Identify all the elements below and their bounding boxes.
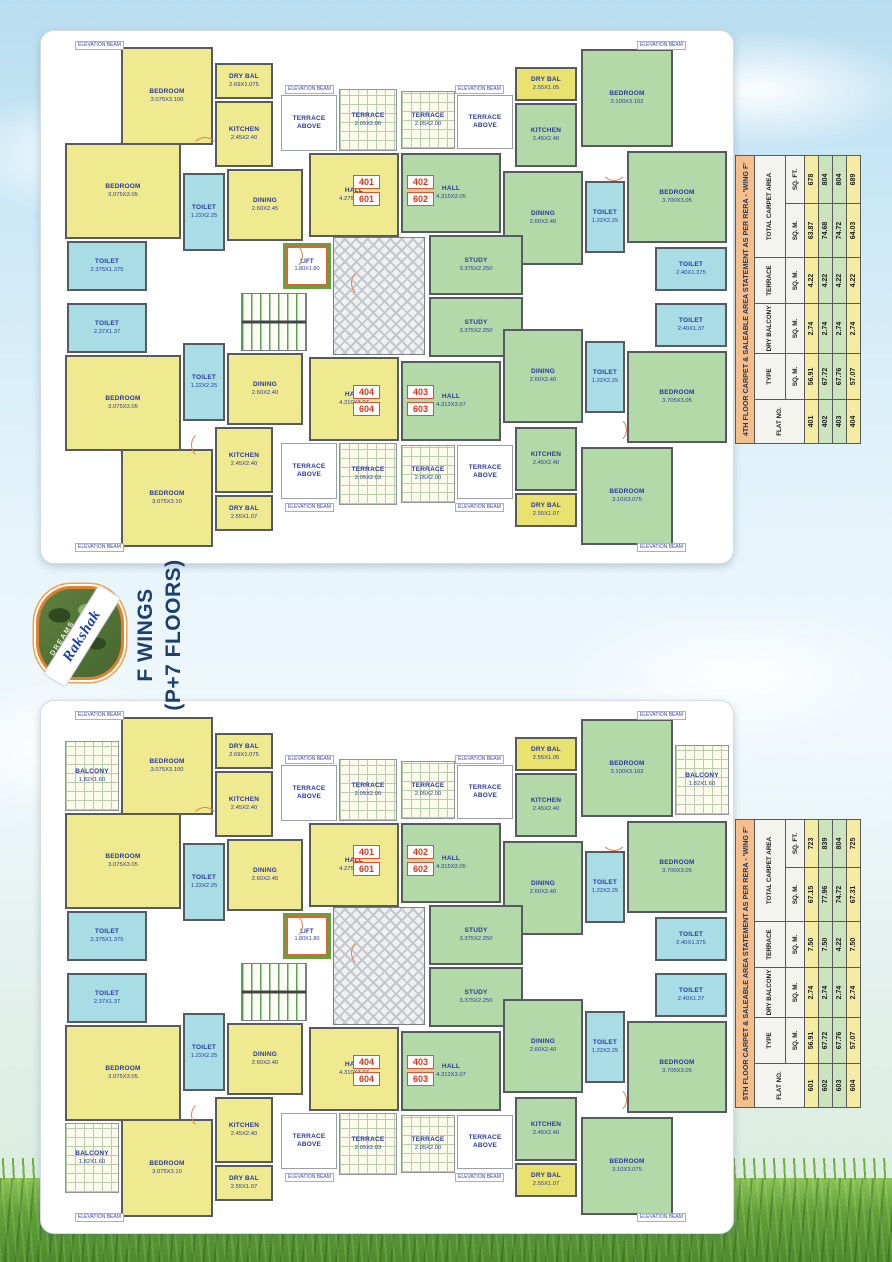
room-dimension-label: 2.55X1.07 — [231, 1184, 257, 1191]
table-cell: 56.91 — [805, 354, 819, 400]
room-toilet: TOILET1.22X2.25 — [585, 181, 625, 253]
room-dimension-label: 3.375X2.250 — [460, 266, 493, 273]
room-study: STUDY3.375X2.250 — [429, 905, 523, 965]
room-dining: DINING2.60X2.40 — [227, 1023, 303, 1095]
table-cell: 723 — [805, 820, 819, 868]
area-table-4th-floor: 4TH FLOOR CARPET & SALEABLE AREA STATEME… — [735, 156, 853, 444]
room-name-label: TOILET — [192, 204, 216, 212]
room-name-label: BEDROOM — [105, 395, 140, 403]
door-swing-arc — [351, 269, 379, 297]
room-toilet: TOILET2.375X1.375 — [67, 241, 147, 291]
room-lobby — [333, 237, 425, 355]
flat-number-badge-stack: 401601 — [353, 175, 380, 206]
room-balcony: BALCONY1.82X1.60 — [65, 1123, 119, 1193]
floor-plan-panel-4th: BEDROOM3.075X3.100DRY BAL2.69X1.075KITCH… — [40, 30, 734, 564]
room-terrace-above: TERRACE ABOVE — [457, 445, 513, 499]
room-dimension-label: 1.22X2.25 — [191, 383, 217, 390]
table-cell: 2.74 — [833, 968, 847, 1018]
room-name-label: DRY BAL — [531, 76, 561, 84]
door-swing-arc — [277, 243, 303, 269]
room-name-label: KITCHEN — [531, 451, 561, 459]
room-name-label: TOILET — [679, 261, 703, 269]
table-cell: SQ. M. — [786, 258, 805, 304]
room-dimension-label: 2.05X2.00 — [415, 791, 441, 798]
room-bedroom: BEDROOM3.075X3.05 — [65, 143, 181, 239]
room-dimension-label: 2.05X2.00 — [415, 475, 441, 482]
room-name-label: BEDROOM — [609, 760, 644, 768]
brochure-page: { "branding": { "logo_top": "DREAMS", "l… — [0, 0, 892, 1262]
elevation-beam-label: ELEVATION BEAM — [285, 755, 334, 764]
room-name-label: TOILET — [593, 369, 617, 377]
elevation-beam-label: ELEVATION BEAM — [637, 41, 686, 50]
room-terrace-above: TERRACE ABOVE — [281, 765, 337, 821]
table-cell: 404 — [847, 400, 861, 444]
room-dimension-label: 1.22X2.25 — [191, 213, 217, 220]
door-swing-arc — [191, 1101, 219, 1129]
table-cell: 7.50 — [819, 922, 833, 968]
room-dimension-label: 2.60X2.40 — [252, 1060, 278, 1067]
door-swing-arc — [601, 155, 627, 181]
room-name-label: TERRACE ABOVE — [458, 464, 512, 480]
room-dimension-label: 2.45X2.40 — [231, 1131, 257, 1138]
room-dimension-label: 2.55X1.07 — [231, 514, 257, 521]
room-kitchen: KITCHEN2.45X2.40 — [215, 101, 273, 167]
room-dry-bal: DRY BAL2.55X1.05 — [515, 67, 577, 101]
room-dimension-label: 2.45X2.40 — [231, 805, 257, 812]
table-cell: 725 — [847, 820, 861, 868]
table-cell: 804 — [833, 820, 847, 868]
flat-number-badge-stack: 403603 — [407, 1055, 434, 1086]
table-cell: 2.74 — [805, 968, 819, 1018]
room-toilet: TOILET2.40X1.37 — [655, 973, 727, 1017]
table-cell: 402 — [819, 400, 833, 444]
room-name-label: TERRACE — [352, 466, 385, 474]
room-name-label: TOILET — [593, 879, 617, 887]
room-terrace: TERRACE2.05X2.00 — [339, 89, 397, 151]
table-cell: 63.87 — [805, 204, 819, 258]
room-dimension-label: 1.22X2.25 — [592, 888, 618, 895]
room-name-label: STUDY — [464, 989, 487, 997]
room-dimension-label: 1.22X2.25 — [592, 1048, 618, 1055]
room-dimension-label: 2.05X2.00 — [355, 121, 381, 128]
elevation-beam-label: ELEVATION BEAM — [455, 1173, 504, 1182]
room-dimension-label: 2.45X2.40 — [533, 460, 559, 467]
room-dimension-label: 1.22X2.25 — [191, 883, 217, 890]
table-cell: 2.74 — [847, 304, 861, 354]
table-cell: 2.74 — [805, 304, 819, 354]
room-name-label: TOILET — [593, 209, 617, 217]
room-dimension-label: 3.075X3.05 — [108, 862, 138, 869]
door-swing-arc — [351, 939, 379, 967]
room-balcony: BALCONY1.82X1.60 — [65, 741, 119, 811]
door-swing-arc — [601, 1087, 627, 1113]
door-swing-arc — [191, 807, 219, 835]
flat-number-badge: 601 — [353, 192, 380, 206]
room-name-label: KITCHEN — [229, 1122, 259, 1130]
room-dimension-label: 2.05X2.03 — [355, 1145, 381, 1152]
room-dimension-label: 3.10X3.075 — [612, 497, 642, 504]
room-name-label: STUDY — [464, 257, 487, 265]
room-dimension-label: 3.700X3.05 — [662, 868, 692, 875]
room-dimension-label: 2.40X1.375 — [676, 940, 706, 947]
room-name-label: HALL — [442, 393, 460, 401]
room-name-label: TERRACE ABOVE — [282, 463, 336, 479]
table-cell: TOTAL CARPET AREA — [755, 156, 786, 258]
room-name-label: TOILET — [95, 928, 119, 936]
room-dimension-label: 1.82X1.60 — [79, 1159, 105, 1166]
room-name-label: TOILET — [192, 1044, 216, 1052]
room-dining: DINING2.60X2.40 — [503, 999, 583, 1093]
room-name-label: STUDY — [464, 319, 487, 327]
room-dining: DINING2.60X2.40 — [503, 329, 583, 423]
wing-title-line2: (P+7 FLOORS) — [160, 559, 188, 710]
room-terrace: TERRACE2.05X2.00 — [401, 91, 455, 149]
room-dimension-label: 2.60X2.40 — [530, 219, 556, 226]
room-name-label: DINING — [531, 1038, 555, 1046]
table-cell: 67.76 — [833, 354, 847, 400]
room-dimension-label: 2.05X2.00 — [355, 791, 381, 798]
door-swing-arc — [191, 431, 219, 459]
room-name-label: BEDROOM — [149, 758, 184, 766]
room-dimension-label: 2.37X1.37 — [94, 999, 120, 1006]
room-name-label: TERRACE — [412, 112, 445, 120]
table-cell: 5TH FLOOR CARPET & SALEABLE AREA STATEME… — [736, 820, 755, 1108]
room-dimension-label: 3.705X3.05 — [662, 398, 692, 405]
room-dimension-label: 2.05X2.00 — [415, 121, 441, 128]
room-toilet: TOILET1.22X2.25 — [585, 1011, 625, 1083]
table-cell: 4TH FLOOR CARPET & SALEABLE AREA STATEME… — [736, 156, 755, 444]
wing-title: F WINGS (P+7 FLOORS) — [80, 555, 240, 715]
room-dimension-label: 2.45X2.40 — [533, 806, 559, 813]
room-stairs — [241, 293, 307, 351]
room-name-label: DINING — [253, 381, 277, 389]
room-dimension-label: 3.075X3.05 — [108, 192, 138, 199]
room-dimension-label: 1.22X2.25 — [592, 218, 618, 225]
table-cell: 4.22 — [819, 258, 833, 304]
room-dimension-label: 2.40X1.375 — [676, 270, 706, 277]
room-kitchen: KITCHEN2.45X2.40 — [515, 103, 577, 167]
room-bedroom: BEDROOM3.705X3.05 — [627, 351, 727, 443]
room-name-label: BEDROOM — [609, 1158, 644, 1166]
room-name-label: BEDROOM — [149, 88, 184, 96]
flat-number-badge: 403 — [407, 385, 434, 399]
room-dimension-label: 3.700X3.05 — [662, 198, 692, 205]
room-name-label: TERRACE — [412, 782, 445, 790]
room-dimension-label: 2.60X2.40 — [530, 1047, 556, 1054]
room-name-label: DINING — [531, 880, 555, 888]
table-cell: 2.74 — [833, 304, 847, 354]
room-bedroom: BEDROOM3.700X3.05 — [627, 151, 727, 243]
table-cell: 67.31 — [847, 868, 861, 922]
table-cell: DRY BALCONY — [755, 968, 786, 1018]
table-cell: SQ. M. — [786, 204, 805, 258]
table-cell: 2.74 — [847, 968, 861, 1018]
flat-number-badge-stack: 404604 — [353, 385, 380, 416]
room-bedroom: BEDROOM3.705X3.05 — [627, 1021, 727, 1113]
room-name-label: TERRACE ABOVE — [458, 114, 512, 130]
room-dimension-label: 2.55X1.05 — [533, 755, 559, 762]
room-dry-bal: DRY BAL2.69X1.075 — [215, 733, 273, 769]
room-dimension-label: 2.60X2.40 — [530, 889, 556, 896]
table-cell: SQ. M. — [786, 304, 805, 354]
elevation-beam-label: ELEVATION BEAM — [75, 543, 124, 552]
room-name-label: DINING — [531, 210, 555, 218]
table-cell: TERRACE — [755, 258, 786, 304]
table-cell: DRY BALCONY — [755, 304, 786, 354]
room-name-label: TERRACE — [412, 1136, 445, 1144]
room-bedroom: BEDROOM3.100X3.102 — [581, 49, 673, 147]
floor-plan-panel-5th: BEDROOM3.075X3.100DRY BAL2.69X1.075KITCH… — [40, 700, 734, 1234]
elevation-beam-label: ELEVATION BEAM — [75, 1213, 124, 1222]
table-cell: 603 — [833, 1064, 847, 1108]
table-cell: FLAT NO. — [755, 1064, 805, 1108]
room-name-label: TERRACE ABOVE — [458, 784, 512, 800]
elevation-beam-label: ELEVATION BEAM — [75, 41, 124, 50]
room-toilet: TOILET1.22X2.25 — [183, 843, 225, 921]
table-cell: FLAT NO. — [755, 400, 805, 444]
room-dimension-label: 2.45X2.40 — [533, 1130, 559, 1137]
table-cell: SQ. M. — [786, 922, 805, 968]
elevation-beam-label: ELEVATION BEAM — [637, 1213, 686, 1222]
room-name-label: KITCHEN — [531, 797, 561, 805]
room-terrace-above: TERRACE ABOVE — [281, 95, 337, 151]
room-dimension-label: 3.10X3.075 — [612, 1167, 642, 1174]
room-dimension-label: 1.82X1.60 — [689, 781, 715, 788]
room-toilet: TOILET1.22X2.25 — [585, 851, 625, 923]
room-toilet: TOILET1.22X2.25 — [183, 343, 225, 421]
table-cell: SQ. M. — [786, 868, 805, 922]
room-dimension-label: 3.075X3.100 — [151, 97, 184, 104]
flat-number-badge-stack: 401601 — [353, 845, 380, 876]
room-kitchen: KITCHEN2.45X2.40 — [215, 771, 273, 837]
table-cell: TERRACE — [755, 922, 786, 968]
table-cell: 403 — [833, 400, 847, 444]
room-dimension-label: 1.80X1.80 — [294, 936, 319, 943]
room-dimension-label: 2.55X1.05 — [533, 85, 559, 92]
table-cell: 4.22 — [847, 258, 861, 304]
room-name-label: BALCONY — [75, 768, 109, 776]
flat-number-badge: 402 — [407, 175, 434, 189]
flat-number-badge: 603 — [407, 1072, 434, 1086]
room-name-label: DRY BAL — [229, 1175, 259, 1183]
table-cell: TYPE — [755, 1018, 786, 1064]
table-cell: 67.72 — [819, 354, 833, 400]
table-cell: 7.50 — [847, 922, 861, 968]
room-name-label: BEDROOM — [609, 488, 644, 496]
flat-number-badge-stack: 402602 — [407, 175, 434, 206]
room-name-label: BEDROOM — [659, 1059, 694, 1067]
room-name-label: TOILET — [95, 320, 119, 328]
table-cell: 604 — [847, 1064, 861, 1108]
flat-number-badge: 602 — [407, 862, 434, 876]
room-name-label: TOILET — [95, 258, 119, 266]
room-terrace-above: TERRACE ABOVE — [457, 1115, 513, 1169]
room-dimension-label: 2.40X1.37 — [678, 996, 704, 1003]
room-name-label: STUDY — [464, 927, 487, 935]
flat-number-badge: 604 — [353, 402, 380, 416]
table-cell: 67.15 — [805, 868, 819, 922]
elevation-beam-label: ELEVATION BEAM — [455, 85, 504, 94]
room-name-label: TOILET — [593, 1039, 617, 1047]
room-kitchen: KITCHEN2.45X2.40 — [515, 427, 577, 491]
room-name-label: KITCHEN — [229, 126, 259, 134]
table-cell: SQ. FT. — [786, 820, 805, 868]
room-terrace-above: TERRACE ABOVE — [457, 95, 513, 149]
room-dry-bal: DRY BAL2.55X1.07 — [515, 1163, 577, 1197]
room-bedroom: BEDROOM3.10X3.075 — [581, 1117, 673, 1215]
room-terrace: TERRACE2.05X2.03 — [339, 1113, 397, 1175]
table-cell: 4.22 — [833, 922, 847, 968]
flat-number-badge: 403 — [407, 1055, 434, 1069]
room-kitchen: KITCHEN2.45X2.40 — [215, 427, 273, 493]
room-dimension-label: 4.312X3.07 — [436, 1072, 466, 1079]
room-name-label: DRY BAL — [531, 502, 561, 510]
table-cell: 4.22 — [805, 258, 819, 304]
door-swing-arc — [601, 417, 627, 443]
room-toilet: TOILET1.22X2.25 — [585, 341, 625, 413]
floor-plan-4th: BEDROOM3.075X3.100DRY BAL2.69X1.075KITCH… — [41, 31, 733, 563]
elevation-beam-label: ELEVATION BEAM — [285, 1173, 334, 1182]
table-cell: 74.72 — [833, 868, 847, 922]
table-cell: 56.91 — [805, 1018, 819, 1064]
room-stairs — [241, 963, 307, 1021]
room-name-label: TERRACE — [352, 782, 385, 790]
room-terrace-above: TERRACE ABOVE — [281, 1113, 337, 1169]
table-cell: SQ. M. — [786, 354, 805, 400]
room-dimension-label: 3.075X3.100 — [151, 767, 184, 774]
room-name-label: TERRACE ABOVE — [458, 1134, 512, 1150]
room-lobby — [333, 907, 425, 1025]
room-dimension-label: 4.312X3.07 — [436, 402, 466, 409]
room-dimension-label: 2.55X1.07 — [533, 511, 559, 518]
table-cell: 4.22 — [833, 258, 847, 304]
door-swing-arc — [601, 825, 627, 851]
room-name-label: DRY BAL — [531, 1172, 561, 1180]
wing-title-line1: F WINGS — [132, 588, 160, 681]
flat-number-badge: 601 — [353, 862, 380, 876]
table-cell: TYPE — [755, 354, 786, 400]
table-cell: 689 — [847, 156, 861, 204]
room-dimension-label: 3.075X3.05 — [108, 1074, 138, 1081]
door-swing-arc — [191, 137, 219, 165]
table-cell: 2.74 — [819, 968, 833, 1018]
room-bedroom: BEDROOM3.075X3.05 — [65, 813, 181, 909]
room-dining: DINING2.60X2.45 — [227, 169, 303, 241]
table-cell: 67.76 — [833, 1018, 847, 1064]
room-dimension-label: 2.45X2.40 — [231, 461, 257, 468]
room-terrace: TERRACE2.05X2.00 — [339, 759, 397, 821]
room-terrace: TERRACE2.05X2.00 — [401, 1115, 455, 1173]
room-kitchen: KITCHEN2.45X2.40 — [215, 1097, 273, 1163]
room-dimension-label: 3.705X3.05 — [662, 1068, 692, 1075]
room-terrace: TERRACE2.05X2.00 — [401, 761, 455, 819]
flat-number-badge: 603 — [407, 402, 434, 416]
flat-number-badge: 602 — [407, 192, 434, 206]
room-bedroom: BEDROOM3.075X3.05 — [65, 1025, 181, 1121]
rera-area-table: 5TH FLOOR CARPET & SALEABLE AREA STATEME… — [735, 819, 861, 1108]
table-cell: 7.50 — [805, 922, 819, 968]
room-terrace: TERRACE2.05X2.00 — [401, 445, 455, 503]
room-toilet: TOILET1.22X2.25 — [183, 173, 225, 251]
room-name-label: TERRACE — [352, 112, 385, 120]
room-name-label: KITCHEN — [531, 127, 561, 135]
room-toilet: TOILET2.40X1.375 — [655, 917, 727, 961]
table-cell: 2.74 — [819, 304, 833, 354]
room-dimension-label: 4.315X3.05 — [436, 194, 466, 201]
room-toilet: TOILET2.37X1.37 — [67, 303, 147, 353]
elevation-beam-label: ELEVATION BEAM — [637, 711, 686, 720]
table-cell: 64.03 — [847, 204, 861, 258]
room-name-label: DINING — [253, 1051, 277, 1059]
room-dimension-label: 2.60X2.45 — [252, 876, 278, 883]
flat-number-badge: 404 — [353, 1055, 380, 1069]
room-name-label: TERRACE — [352, 1136, 385, 1144]
elevation-beam-label: ELEVATION BEAM — [455, 755, 504, 764]
room-name-label: KITCHEN — [531, 1121, 561, 1129]
room-name-label: BEDROOM — [105, 1065, 140, 1073]
room-name-label: BEDROOM — [609, 90, 644, 98]
room-dining: DINING2.60X2.45 — [227, 839, 303, 911]
room-dimension-label: 1.80X1.80 — [294, 266, 319, 273]
room-bedroom: BEDROOM3.075X3.100 — [121, 47, 213, 145]
room-name-label: KITCHEN — [229, 452, 259, 460]
table-cell: 57.07 — [847, 354, 861, 400]
table-cell: 601 — [805, 1064, 819, 1108]
room-dimension-label: 2.375X1.375 — [91, 267, 124, 274]
room-dry-bal: DRY BAL2.69X1.075 — [215, 63, 273, 99]
room-dimension-label: 2.05X2.03 — [355, 475, 381, 482]
table-cell: SQ. FT. — [786, 156, 805, 204]
room-bedroom: BEDROOM3.075X3.10 — [121, 1119, 213, 1217]
room-dimension-label: 1.82X1.60 — [79, 777, 105, 784]
room-terrace: TERRACE2.05X2.03 — [339, 443, 397, 505]
room-bedroom: BEDROOM3.10X3.075 — [581, 447, 673, 545]
elevation-beam-label: ELEVATION BEAM — [455, 503, 504, 512]
room-name-label: TOILET — [192, 374, 216, 382]
room-dimension-label: 3.100X3.102 — [611, 99, 644, 106]
room-name-label: BEDROOM — [149, 490, 184, 498]
room-dimension-label: 3.100X3.102 — [611, 769, 644, 776]
room-kitchen: KITCHEN2.45X2.40 — [515, 773, 577, 837]
flat-number-badge-stack: 403603 — [407, 385, 434, 416]
flat-number-badge: 402 — [407, 845, 434, 859]
room-study: STUDY3.375X2.250 — [429, 235, 523, 295]
room-name-label: KITCHEN — [229, 796, 259, 804]
room-dimension-label: 2.60X2.40 — [252, 390, 278, 397]
room-toilet: TOILET2.37X1.37 — [67, 973, 147, 1023]
room-dry-bal: DRY BAL2.55X1.07 — [215, 1165, 273, 1201]
room-dimension-label: 4.315X3.05 — [436, 864, 466, 871]
table-cell: 804 — [819, 156, 833, 204]
rera-area-table: 4TH FLOOR CARPET & SALEABLE AREA STATEME… — [735, 155, 861, 444]
room-bedroom: BEDROOM3.075X3.10 — [121, 449, 213, 547]
room-name-label: TOILET — [192, 874, 216, 882]
table-cell: SQ. M. — [786, 968, 805, 1018]
room-terrace-above: TERRACE ABOVE — [457, 765, 513, 819]
room-name-label: BALCONY — [685, 772, 719, 780]
room-name-label: BEDROOM — [105, 183, 140, 191]
table-cell: TOTAL CARPET AREA — [755, 820, 786, 922]
room-dimension-label: 3.075X3.10 — [152, 499, 182, 506]
room-dimension-label: 2.375X1.375 — [91, 937, 124, 944]
room-name-label: BEDROOM — [659, 389, 694, 397]
area-table-5th-floor: 5TH FLOOR CARPET & SALEABLE AREA STATEME… — [735, 820, 853, 1108]
room-toilet: TOILET2.40X1.37 — [655, 303, 727, 347]
room-bedroom: BEDROOM3.075X3.05 — [65, 355, 181, 451]
room-name-label: TERRACE ABOVE — [282, 115, 336, 131]
room-dimension-label: 1.22X2.25 — [592, 378, 618, 385]
table-cell: SQ. M. — [786, 1018, 805, 1064]
